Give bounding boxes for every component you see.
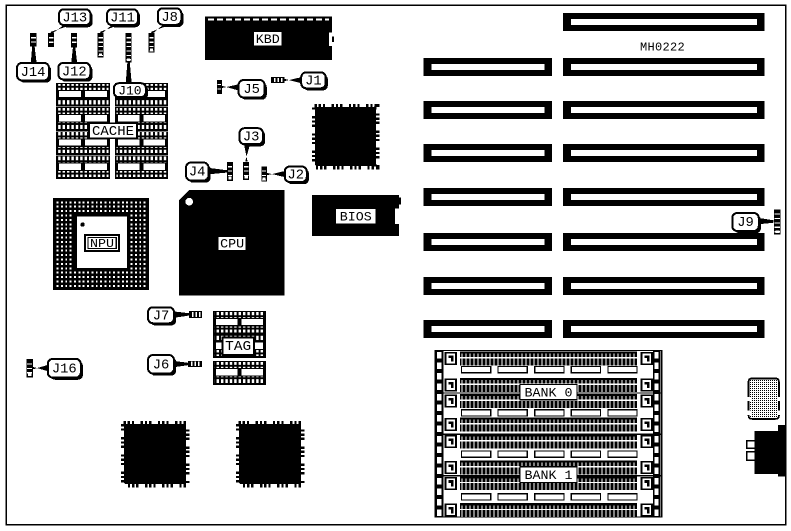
svg-text:J2: J2 <box>288 168 305 183</box>
svg-text:J1: J1 <box>305 75 322 90</box>
svg-text:J13: J13 <box>62 11 87 26</box>
svg-text:J16: J16 <box>52 362 77 377</box>
svg-text:J8: J8 <box>161 11 178 26</box>
svg-text:J12: J12 <box>62 65 87 80</box>
svg-text:CPU: CPU <box>220 237 244 252</box>
svg-text:TAG: TAG <box>225 340 251 355</box>
svg-text:NPU: NPU <box>90 237 114 251</box>
svg-text:BIOS: BIOS <box>340 209 372 224</box>
svg-text:MH0222: MH0222 <box>640 41 685 55</box>
svg-text:J6: J6 <box>153 358 170 373</box>
svg-text:J11: J11 <box>110 11 135 26</box>
svg-text:KBD: KBD <box>256 32 280 47</box>
svg-text:BANK 1: BANK 1 <box>525 469 573 483</box>
svg-text:J5: J5 <box>243 83 260 98</box>
svg-text:J4: J4 <box>189 166 206 181</box>
svg-text:J14: J14 <box>21 66 46 81</box>
svg-text:J10: J10 <box>118 83 141 98</box>
svg-text:J7: J7 <box>153 310 170 325</box>
svg-text:J3: J3 <box>243 130 260 145</box>
svg-text:BANK 0: BANK 0 <box>525 386 573 400</box>
svg-text:CACHE: CACHE <box>92 125 134 140</box>
svg-text:J9: J9 <box>737 216 754 231</box>
